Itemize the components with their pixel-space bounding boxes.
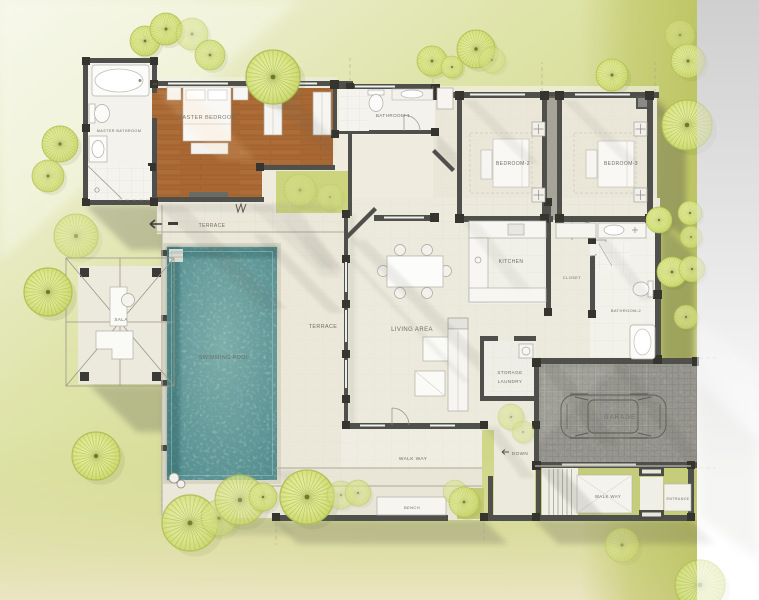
svg-text:LAUNDRY: LAUNDRY [498, 379, 523, 384]
svg-text:CLOSET: CLOSET [563, 275, 582, 280]
svg-text:WALK WAY: WALK WAY [399, 456, 428, 462]
svg-text:KITCHEN: KITCHEN [499, 259, 524, 265]
svg-text:BATHROOM-2: BATHROOM-2 [611, 308, 642, 313]
svg-text:TERRACE: TERRACE [199, 223, 226, 229]
svg-text:GARAGE: GARAGE [604, 414, 636, 421]
svg-text:BENCH: BENCH [404, 505, 420, 510]
svg-text:ENTRANCE: ENTRANCE [667, 497, 690, 501]
svg-text:LIVING AREA: LIVING AREA [391, 327, 433, 333]
svg-text:MASTER BEDROOM: MASTER BEDROOM [177, 115, 236, 121]
svg-text:SWIMMING POOL: SWIMMING POOL [199, 355, 249, 361]
svg-text:BATHROOM-1: BATHROOM-1 [376, 113, 410, 118]
svg-text:STORAGE: STORAGE [497, 370, 522, 375]
svg-text:TERRACE: TERRACE [309, 324, 338, 330]
svg-text:BEDROOM-2: BEDROOM-2 [496, 161, 530, 167]
svg-text:WALK WAY: WALK WAY [595, 494, 621, 499]
svg-text:SALA: SALA [114, 317, 128, 322]
svg-text:BEDROOM-3: BEDROOM-3 [604, 161, 638, 167]
svg-text:MASTER BATHROOM: MASTER BATHROOM [97, 129, 142, 133]
svg-text:DOWN: DOWN [512, 451, 528, 456]
